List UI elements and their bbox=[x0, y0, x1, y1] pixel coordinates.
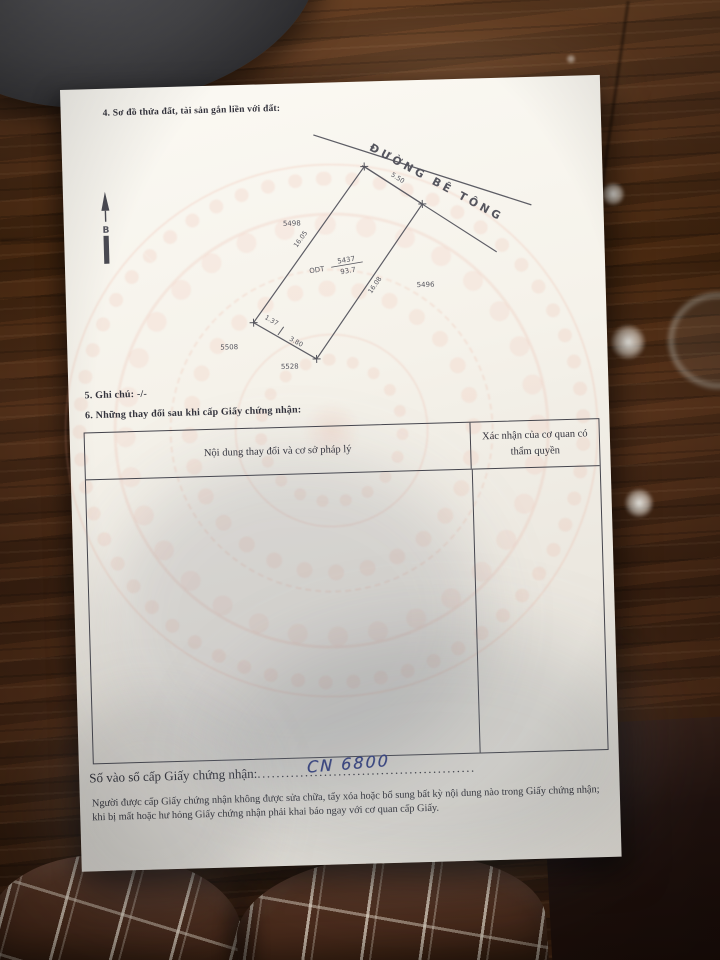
adjacent-plot-upper-left: 5498 bbox=[283, 219, 301, 227]
parcel-area: 93.7 bbox=[340, 266, 357, 276]
cadastral-sketch: B ĐƯỜNG BÊ TÔNG 5.50 16.05 16.08 1.37 bbox=[61, 115, 609, 430]
north-label: B bbox=[102, 226, 109, 236]
light-reflection bbox=[624, 488, 654, 518]
light-reflection bbox=[601, 182, 625, 206]
footer-legal-note: Người được cấp Giấy chứng nhận không đượ… bbox=[92, 783, 615, 826]
measure-right: 16.08 bbox=[366, 275, 383, 295]
section4-title: 4. Sơ đồ thửa đất, tài sản gắn liền với … bbox=[103, 104, 281, 119]
changes-table-body-row bbox=[86, 466, 608, 763]
certificate-page: 4. Sơ đồ thửa đất, tài sản gắn liền với … bbox=[60, 75, 622, 872]
changes-table-confirm-header: Xác nhận của cơ quan có thẩm quyền bbox=[470, 419, 599, 469]
parcel-land-use-code: ODT bbox=[309, 265, 326, 276]
section5-title: 5. Ghi chú: -/- bbox=[84, 389, 147, 402]
light-reflection bbox=[566, 54, 576, 64]
parcel-label: ODT 5437 93.7 bbox=[308, 254, 365, 282]
changes-table-content-cell bbox=[86, 470, 481, 764]
light-reflection bbox=[610, 324, 646, 360]
changes-table-confirm-cell bbox=[473, 466, 608, 752]
adjacent-plot-right: 5496 bbox=[417, 281, 436, 290]
measure-left: 16.05 bbox=[292, 229, 309, 249]
adjacent-plot-lower-left: 5508 bbox=[220, 343, 238, 351]
changes-table: Nội dung thay đổi và cơ sở pháp lý Xác n… bbox=[84, 418, 609, 764]
adjacent-plot-bottom: 5528 bbox=[281, 362, 299, 370]
measure-bottom-short: 1.37 bbox=[263, 313, 280, 327]
fabric-fold-shadow bbox=[218, 866, 264, 960]
measure-front: 5.50 bbox=[389, 171, 406, 186]
photo-stage: 4. Sơ đồ thửa đất, tài sản gắn liền với … bbox=[0, 0, 720, 960]
north-arrow-icon: B bbox=[101, 192, 111, 264]
serial-number-row: Số vào sổ cấp Giấy chứng nhận:..........… bbox=[89, 760, 476, 787]
serial-label: Số vào sổ cấp Giấy chứng nhận: bbox=[89, 766, 257, 786]
